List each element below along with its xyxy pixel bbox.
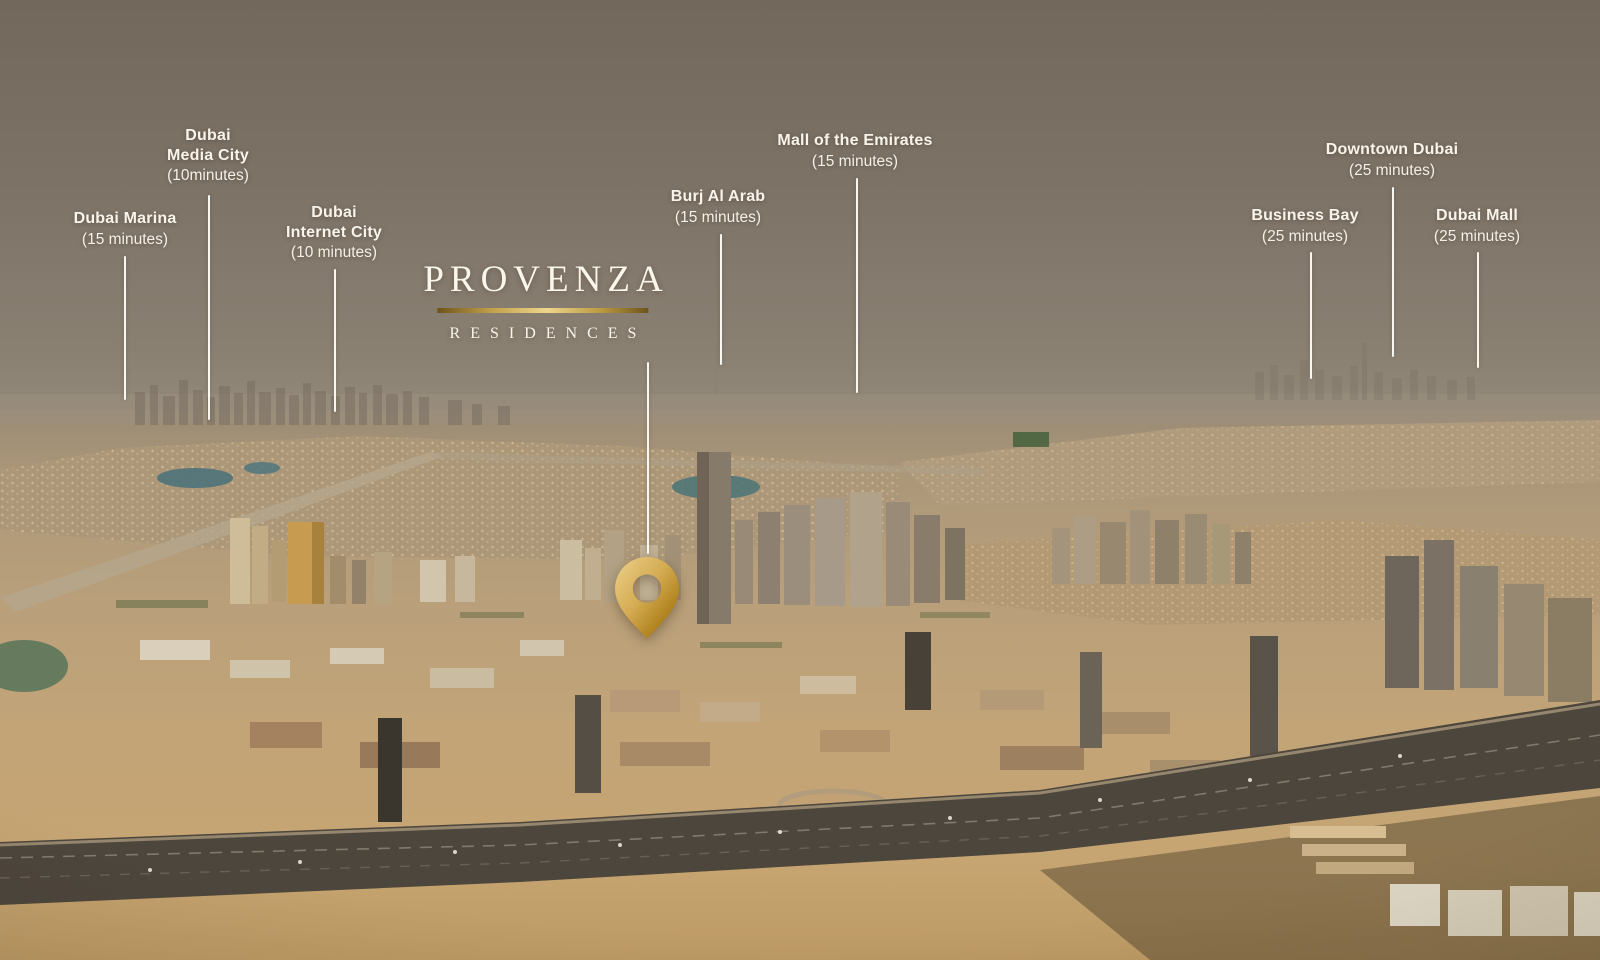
brand-name: PROVENZA	[417, 261, 668, 298]
location-time: (25 minutes)	[1434, 227, 1520, 247]
location-label-mall-of-the-emirates: Mall of the Emirates (15 minutes)	[777, 131, 932, 171]
location-time: (15 minutes)	[671, 208, 766, 228]
location-name: Dubai Mall	[1434, 206, 1520, 226]
brand-logo: PROVENZA RESIDENCES	[417, 261, 668, 342]
map-pin-icon	[613, 555, 681, 641]
location-name: Burj Al Arab	[671, 187, 766, 207]
connector-line-downtown-dubai	[1392, 187, 1394, 357]
location-name: Business Bay	[1251, 206, 1358, 226]
location-time: (10minutes)	[167, 166, 249, 186]
location-name: Downtown Dubai	[1326, 140, 1459, 160]
location-label-burj-al-arab: Burj Al Arab (15 minutes)	[671, 187, 766, 227]
connector-line-burj-al-arab	[720, 234, 722, 365]
aerial-location-map: Dubai Marina (15 minutes) Dubai Media Ci…	[0, 0, 1600, 960]
connector-line-dubai-mall	[1477, 252, 1479, 368]
connector-line-dubai-media-city	[208, 195, 210, 420]
location-time: (10 minutes)	[286, 243, 382, 263]
location-label-business-bay: Business Bay (25 minutes)	[1251, 206, 1358, 246]
location-label-dubai-media-city: Dubai Media City (10minutes)	[167, 126, 249, 186]
location-time: (15 minutes)	[74, 230, 177, 250]
connector-line-business-bay	[1310, 252, 1312, 379]
location-label-dubai-marina: Dubai Marina (15 minutes)	[74, 209, 177, 249]
connector-line-dubai-marina	[124, 256, 126, 400]
location-name: Mall of the Emirates	[777, 131, 932, 151]
location-name: Dubai Media City	[167, 126, 249, 165]
brand-subtitle: RESIDENCES	[417, 326, 668, 342]
logo-divider	[438, 308, 649, 313]
location-time: (15 minutes)	[777, 152, 932, 172]
location-time: (25 minutes)	[1326, 161, 1459, 181]
sky	[0, 0, 1600, 436]
location-name: Dubai Marina	[74, 209, 177, 229]
location-label-dubai-mall: Dubai Mall (25 minutes)	[1434, 206, 1520, 246]
connector-line-provenza-pin	[647, 362, 649, 554]
location-label-downtown-dubai: Downtown Dubai (25 minutes)	[1326, 140, 1459, 180]
location-label-dubai-internet-city: Dubai Internet City (10 minutes)	[286, 203, 382, 263]
burj-al-arab-silhouette	[714, 356, 718, 394]
location-time: (25 minutes)	[1251, 227, 1358, 247]
connector-line-dubai-internet-city	[334, 269, 336, 412]
location-name: Dubai Internet City	[286, 203, 382, 242]
connector-line-mall-of-the-emirates	[856, 178, 858, 393]
